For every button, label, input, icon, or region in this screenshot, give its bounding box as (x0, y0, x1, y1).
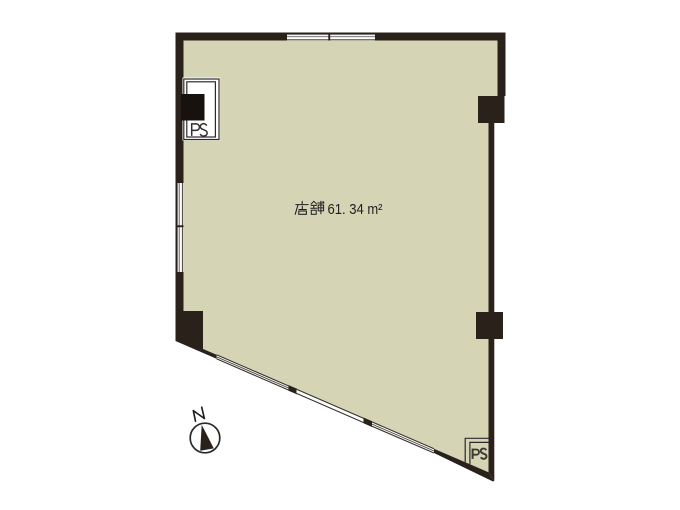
svg-text:61. 34 m²: 61. 34 m² (328, 202, 383, 218)
